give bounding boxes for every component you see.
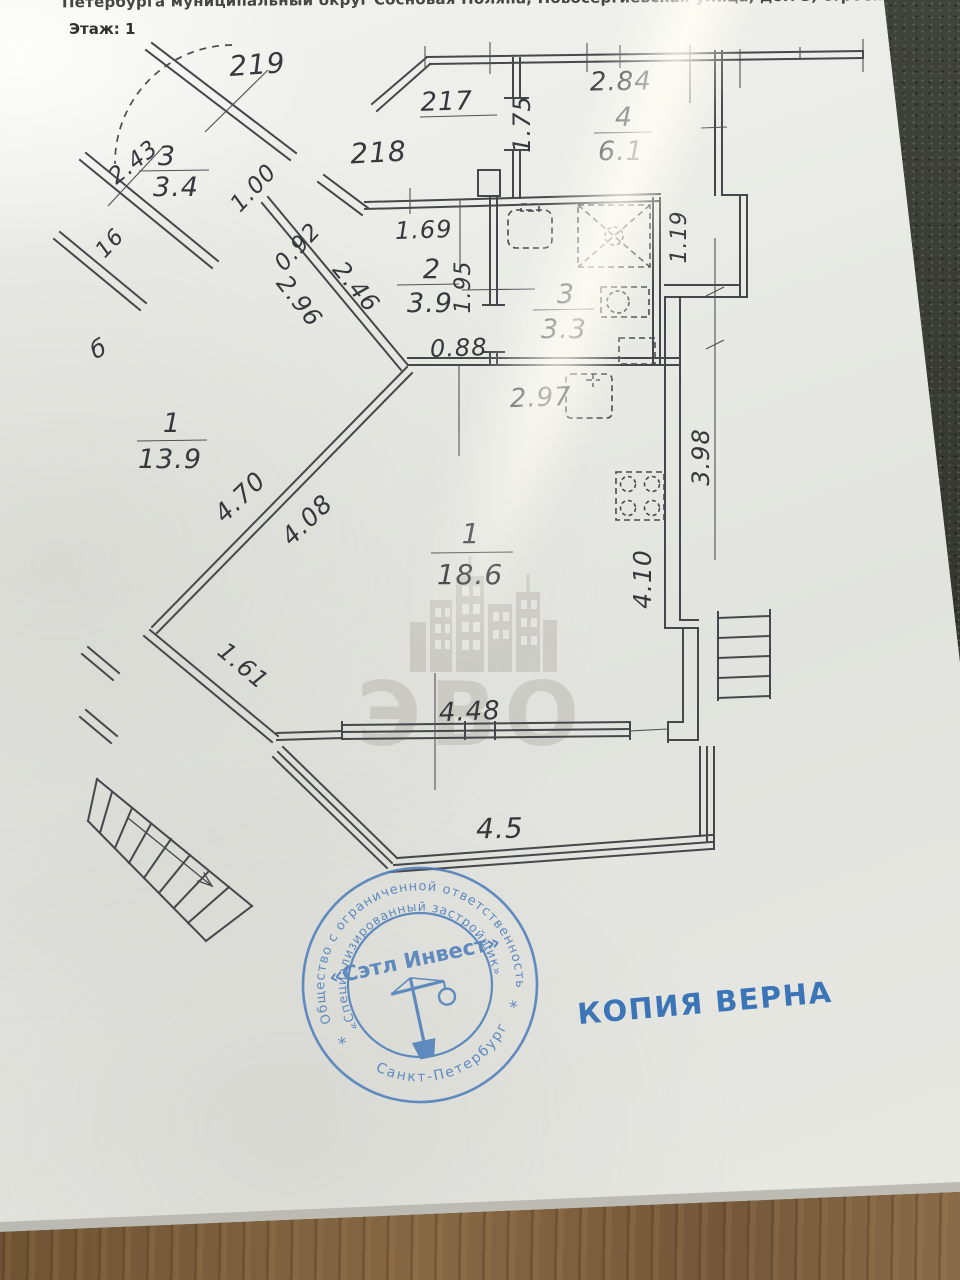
dim-0-92: 0.92: [270, 218, 327, 276]
stove-icon: [616, 472, 664, 520]
dim-4-70: 4.70: [209, 466, 272, 528]
dim-0-88: 0.88: [430, 333, 488, 363]
room-139-area: 13.9: [138, 444, 202, 475]
corridor-unit-217: 217: [420, 86, 474, 118]
dim-1-75: 1.75: [508, 95, 536, 152]
dim-2-96: 2.96: [271, 270, 328, 332]
dim-4-10: 4.10: [628, 549, 657, 609]
dim-1-95: 1.95: [451, 261, 476, 314]
dim-2-46: 2.46: [327, 256, 385, 318]
dim-1-61: 1.61: [212, 637, 274, 695]
dim-1-00: 1.00: [226, 159, 283, 217]
room-hall-number: 2: [423, 254, 441, 285]
dim-4-08: 4.08: [276, 489, 339, 551]
balcony-door-threshold: [630, 729, 668, 731]
dim-1-16: 16: [91, 224, 130, 263]
room-139-number: 1: [163, 408, 181, 439]
svg-text:Санкт-Петербург: Санкт-Петербург: [368, 1016, 520, 1096]
column: [478, 170, 500, 196]
dim-4-5: 4.5: [476, 812, 524, 846]
room-hall-area: 3.9: [407, 288, 453, 319]
stamp-star-right: *: [508, 997, 520, 1018]
stamp-star-left: *: [337, 1034, 349, 1055]
stamp-city-text: Санкт-Петербург: [368, 1016, 520, 1096]
annotation-b-glyph: б: [86, 333, 112, 365]
dim-1-69: 1.69: [395, 215, 453, 245]
room-storage-area: 3.4: [153, 172, 199, 203]
stairs: [88, 779, 252, 941]
corridor-unit-218: 218: [349, 135, 407, 171]
dim-3-98: 3.98: [687, 428, 715, 485]
neighbor-balcony-hatch: [718, 610, 770, 700]
corridor-unit-219: 219: [228, 46, 287, 83]
